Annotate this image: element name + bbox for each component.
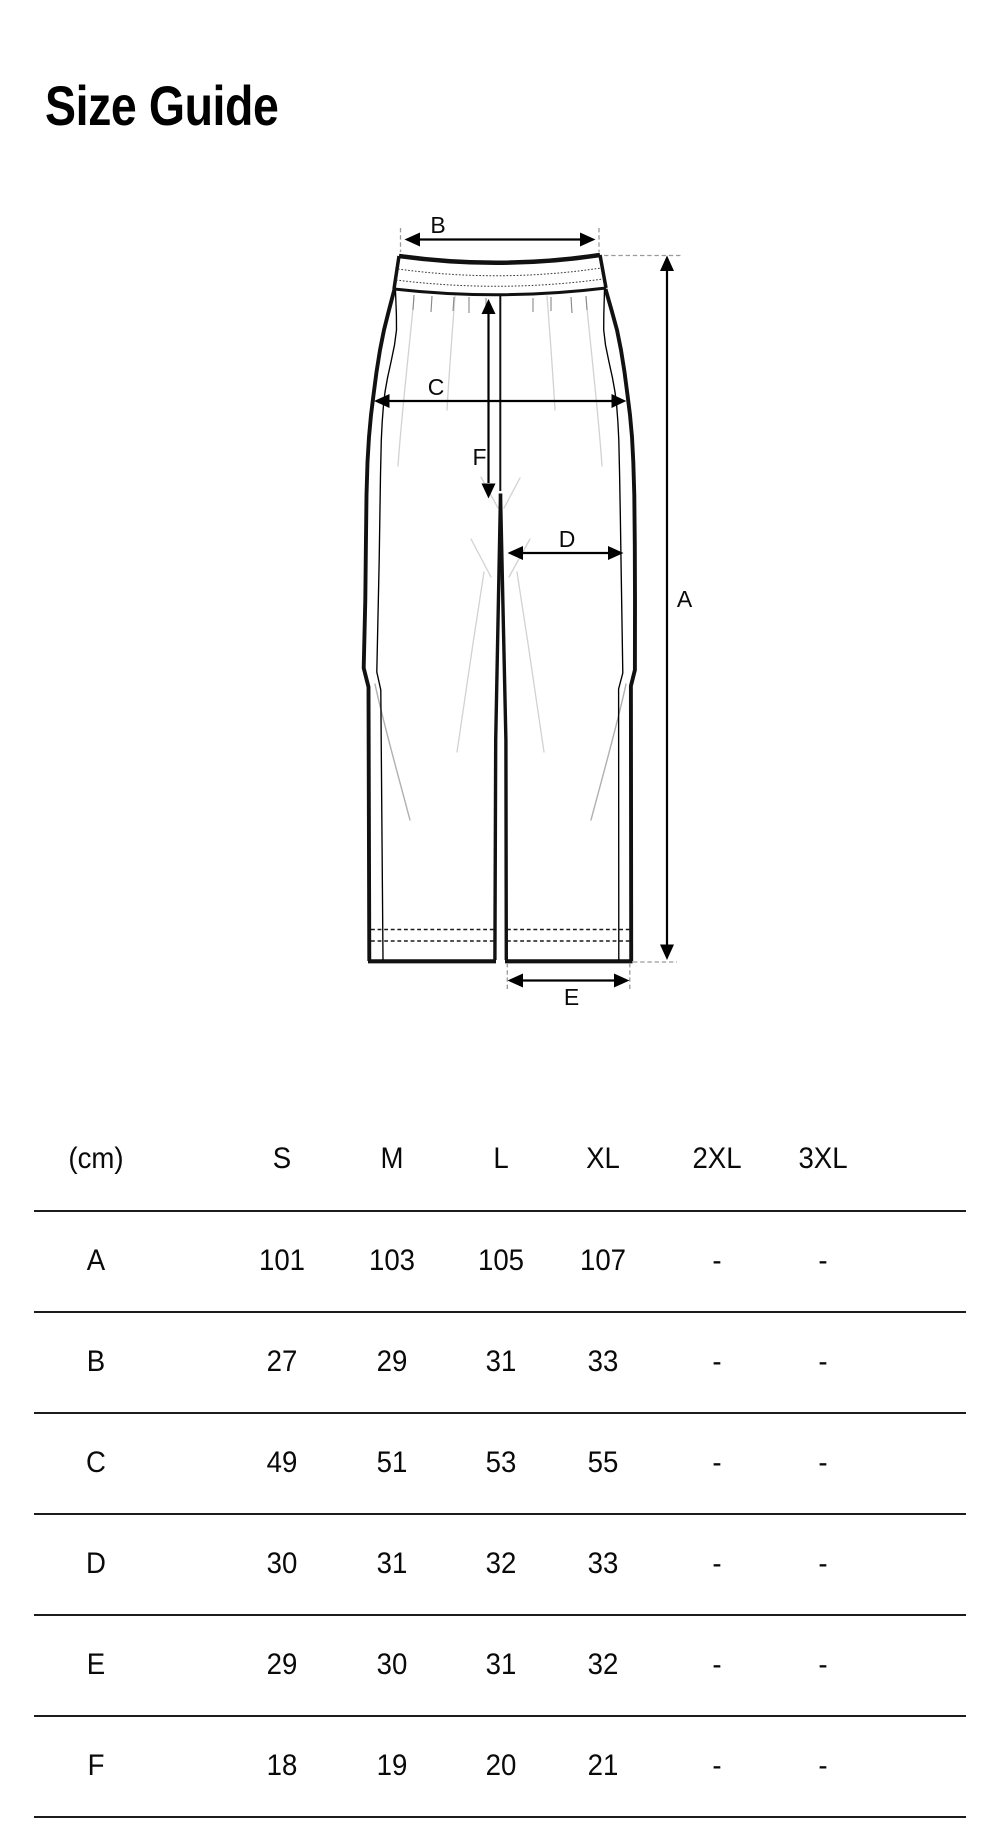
svg-text:D: D	[559, 526, 576, 552]
svg-text:B: B	[430, 212, 445, 238]
svg-text:A: A	[677, 586, 693, 612]
svg-text:E: E	[564, 984, 579, 1010]
svg-text:C: C	[428, 374, 445, 400]
svg-text:F: F	[472, 444, 486, 470]
